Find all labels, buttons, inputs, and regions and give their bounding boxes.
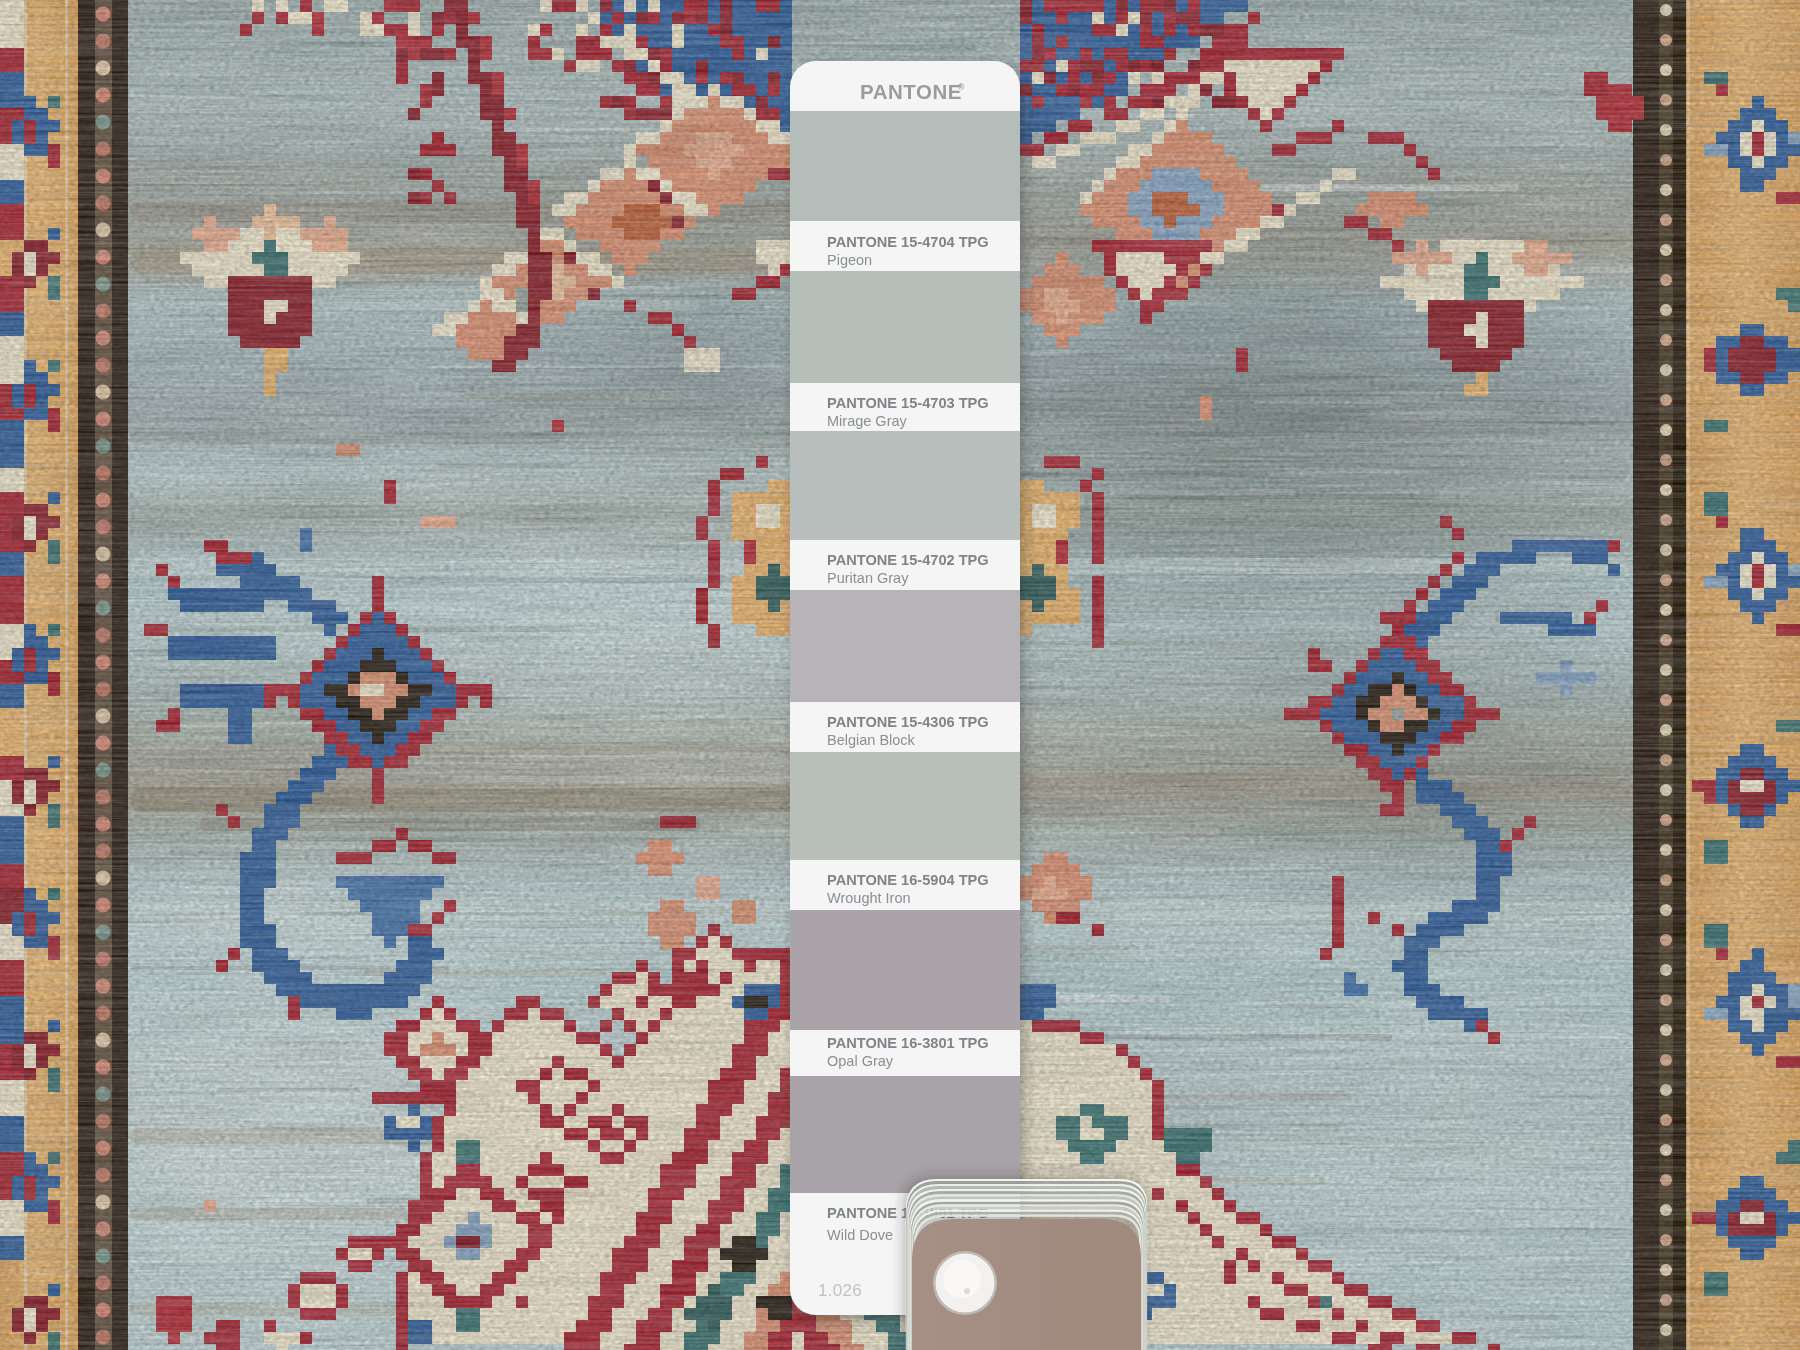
svg-text:PANTONE 15-4703 TPG: PANTONE 15-4703 TPG (827, 395, 989, 411)
svg-text:Mirage Gray: Mirage Gray (827, 413, 908, 429)
svg-text:PANTONE 16-5904 TPG: PANTONE 16-5904 TPG (827, 872, 989, 888)
svg-text:Puritan Gray: Puritan Gray (827, 570, 909, 586)
svg-text:PANTONE 15-4704 TPG: PANTONE 15-4704 TPG (827, 234, 989, 250)
svg-text:Opal Gray: Opal Gray (827, 1053, 894, 1069)
svg-text:Belgian Block: Belgian Block (827, 732, 916, 748)
svg-text:PANTONE: PANTONE (860, 80, 962, 103)
svg-text:PANTONE 16-3801 TPG: PANTONE 16-3801 TPG (827, 1035, 989, 1051)
svg-text:®: ® (958, 82, 965, 92)
svg-text:1.026: 1.026 (818, 1281, 862, 1300)
svg-text:PANTONE 15-4306 TPG: PANTONE 15-4306 TPG (827, 714, 989, 730)
svg-text:Wrought Iron: Wrought Iron (827, 890, 911, 906)
svg-text:Wild Dove: Wild Dove (827, 1227, 893, 1243)
svg-text:Pigeon: Pigeon (827, 252, 872, 268)
svg-text:PANTONE 15-4702 TPG: PANTONE 15-4702 TPG (827, 552, 989, 568)
